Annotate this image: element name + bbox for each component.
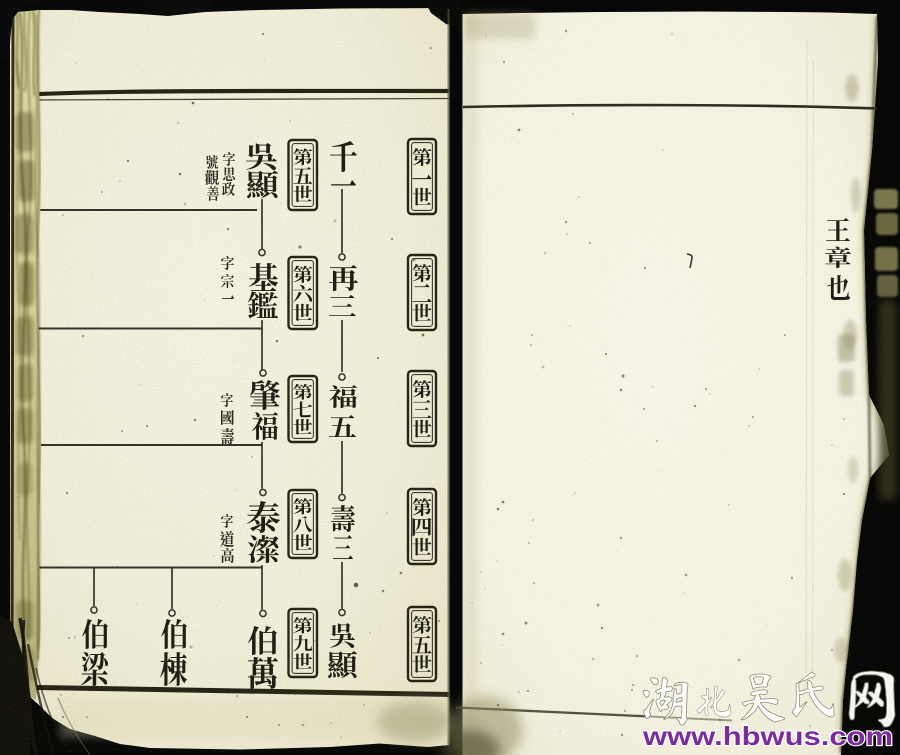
svg-text:www.hbwus.com: www.hbwus.com bbox=[642, 721, 893, 751]
